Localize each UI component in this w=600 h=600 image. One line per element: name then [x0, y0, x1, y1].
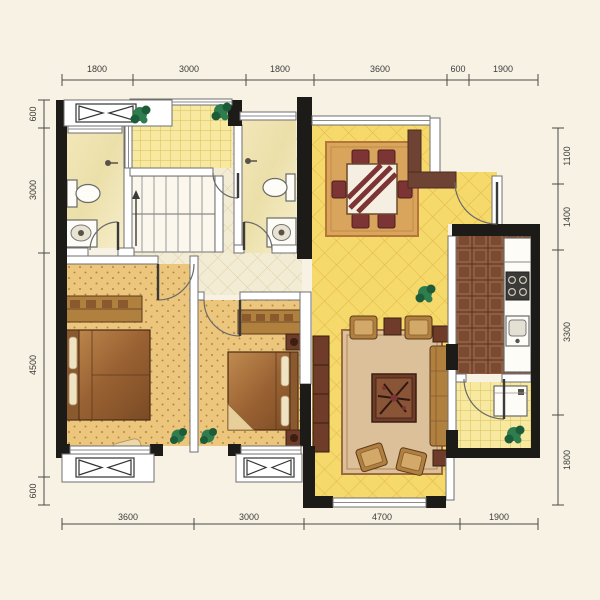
dimension-chain-left: 600 3000 4500 600	[28, 100, 50, 505]
dining-set	[326, 142, 418, 236]
dining-chair	[378, 150, 395, 164]
faucet	[515, 339, 519, 343]
dim-label: 600	[450, 64, 465, 74]
dining-chair	[332, 181, 346, 198]
exterior-wall-left	[56, 100, 67, 456]
dim-label: 600	[28, 483, 38, 498]
pillow	[281, 356, 289, 386]
pillow	[281, 396, 289, 426]
dim-label: 600	[28, 106, 38, 121]
side-table	[384, 318, 401, 335]
dim-label: 4500	[28, 355, 38, 375]
dim-label: 3000	[179, 64, 199, 74]
dining-chair	[378, 214, 395, 228]
dining-chair	[352, 214, 369, 228]
dim-label: 3600	[118, 512, 138, 522]
dim-label: 1800	[270, 64, 290, 74]
dimension-chain-top: 1800 3000 1800 3600 600 1900	[62, 64, 538, 86]
pillow	[69, 337, 77, 369]
dimension-chain-right: 1100 1400 3300 1800	[552, 128, 572, 505]
entry-feature-wall	[408, 172, 456, 188]
dim-label: 1900	[489, 512, 509, 522]
dim-label: 1800	[562, 450, 572, 470]
headboard	[290, 352, 298, 430]
dim-label: 3000	[239, 512, 259, 522]
dim-label: 1900	[493, 64, 513, 74]
toilet	[76, 185, 100, 203]
dim-label: 1100	[562, 146, 572, 165]
dim-label: 4700	[372, 512, 392, 522]
dim-label: 1400	[562, 207, 572, 227]
dining-chair	[352, 150, 369, 164]
dim-label: 3300	[562, 322, 572, 342]
floor-plan-canvas: 1800 3000 1800 3600 600 1900 3600 3000 4…	[0, 0, 600, 600]
dim-label: 3000	[28, 180, 38, 200]
pillow	[69, 373, 77, 405]
toilet	[263, 179, 287, 197]
dimension-chain-bottom: 3600 3000 4700 1900	[62, 512, 538, 530]
floor-plan-page: 1800 3000 1800 3600 600 1900 3600 3000 4…	[0, 0, 600, 600]
dim-label: 3600	[370, 64, 390, 74]
cooktop	[506, 272, 529, 300]
exterior-wall-right	[531, 224, 540, 458]
kitchen-counter	[504, 238, 531, 372]
kitchen-top-wall	[452, 224, 540, 236]
dim-label: 1800	[87, 64, 107, 74]
